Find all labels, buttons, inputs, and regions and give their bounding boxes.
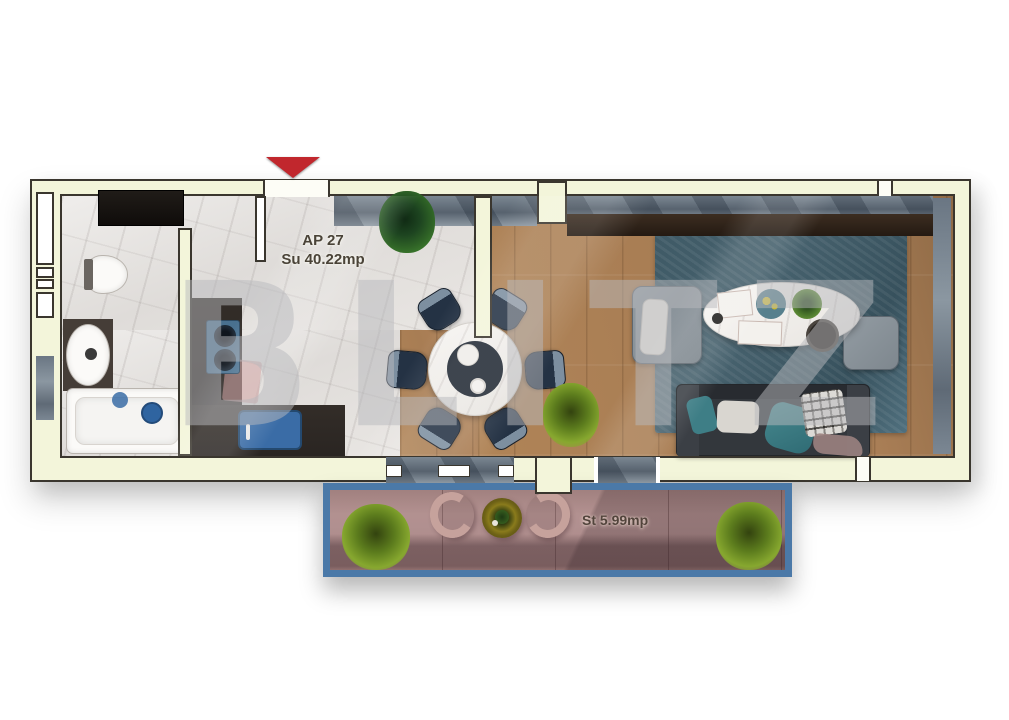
- terrace-table-cup: [492, 520, 498, 526]
- tv-console: [567, 214, 933, 236]
- kitchen-faucet: [246, 424, 250, 440]
- armchair: [632, 286, 702, 364]
- bathroom-partition: [178, 228, 192, 456]
- door-frame: [498, 465, 514, 477]
- hall-closet-glass: [334, 196, 537, 226]
- top-wall-gap: [877, 181, 893, 196]
- sliding-glass-door: [386, 457, 514, 483]
- table-plant: [792, 289, 822, 319]
- white-pillow: [716, 400, 759, 433]
- top-wall-pillar: [537, 181, 567, 224]
- bathtub-drain: [112, 392, 128, 408]
- left-wall-shaft: [36, 292, 54, 318]
- sink-faucet: [85, 348, 97, 360]
- door-frame: [438, 465, 470, 477]
- apartment-unit-label: AP 27: [243, 231, 403, 250]
- terrace-door: [594, 457, 660, 483]
- terrace-plant: [716, 502, 782, 570]
- cup: [712, 313, 723, 324]
- terrace: St 5.99mp: [323, 483, 792, 577]
- dining-chair: [385, 349, 428, 390]
- apartment-area-label: Su 40.22mp: [243, 250, 403, 269]
- left-wall-shaft: [36, 267, 54, 278]
- terrace-area-label: St 5.99mp: [582, 512, 722, 528]
- plaid-pillow: [800, 388, 848, 437]
- left-wall-shaft: [36, 192, 54, 265]
- sofa: [676, 384, 870, 456]
- kitchen-sink: [238, 410, 302, 450]
- apartment-label: AP 27 Su 40.22mp: [243, 231, 403, 269]
- burner: [214, 349, 236, 371]
- entrance-arrow-icon: [266, 157, 320, 178]
- terrace-table: [482, 498, 522, 538]
- plate: [470, 378, 486, 394]
- door-frame: [386, 465, 402, 477]
- entry-wardrobe: [98, 190, 184, 226]
- bathtub-basin: [75, 397, 179, 445]
- floor-plan-canvas: AP 27 Su 40.22mp: [0, 0, 1009, 720]
- cooktop: [206, 320, 240, 374]
- plate: [457, 344, 479, 366]
- bottom-wall-gap: [855, 457, 871, 481]
- hall-living-partition: [474, 196, 492, 338]
- armchair-pillow: [639, 298, 669, 356]
- bowl: [806, 319, 839, 352]
- right-window-band: [933, 198, 951, 454]
- bathroom-window: [36, 356, 54, 420]
- decor-plate: [756, 289, 786, 319]
- wall-pillar-jog: [535, 456, 572, 494]
- book: [738, 320, 783, 346]
- left-wall-shaft: [36, 279, 54, 289]
- bath-stool: [141, 402, 163, 424]
- coffee-table: [703, 282, 860, 347]
- terrace-plant: [342, 504, 410, 570]
- dining-plant: [543, 383, 599, 447]
- burner: [214, 325, 236, 347]
- book: [717, 289, 754, 318]
- entrance-opening: [263, 180, 330, 197]
- toilet-tank: [84, 259, 93, 290]
